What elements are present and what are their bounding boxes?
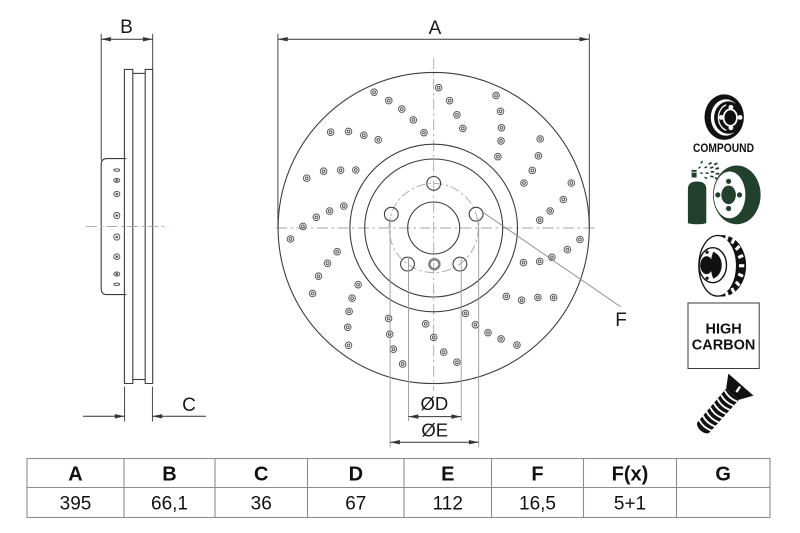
svg-text:D: D — [349, 464, 363, 486]
svg-text:5+1: 5+1 — [614, 494, 646, 515]
svg-text:ØE: ØE — [421, 420, 448, 441]
svg-text:C: C — [254, 464, 268, 486]
svg-text:66,1: 66,1 — [151, 494, 188, 515]
svg-text:CARBON: CARBON — [692, 338, 756, 354]
svg-text:395: 395 — [60, 494, 92, 515]
svg-text:ØD: ØD — [421, 393, 449, 414]
svg-text:COMPOUND: COMPOUND — [693, 143, 754, 155]
svg-text:67: 67 — [345, 494, 366, 515]
svg-text:F(x): F(x) — [612, 464, 649, 486]
svg-text:B: B — [120, 17, 133, 38]
svg-text:16,5: 16,5 — [519, 494, 556, 515]
svg-text:A: A — [68, 464, 82, 486]
svg-text:B: B — [162, 464, 176, 486]
svg-text:HIGH: HIGH — [705, 322, 741, 338]
svg-text:36: 36 — [251, 494, 272, 515]
svg-text:A: A — [429, 18, 442, 39]
svg-text:112: 112 — [433, 494, 463, 515]
svg-text:F: F — [531, 464, 543, 486]
svg-text:E: E — [441, 464, 454, 486]
svg-text:G: G — [715, 464, 731, 486]
svg-text:F: F — [615, 310, 627, 331]
svg-text:C: C — [182, 395, 196, 416]
